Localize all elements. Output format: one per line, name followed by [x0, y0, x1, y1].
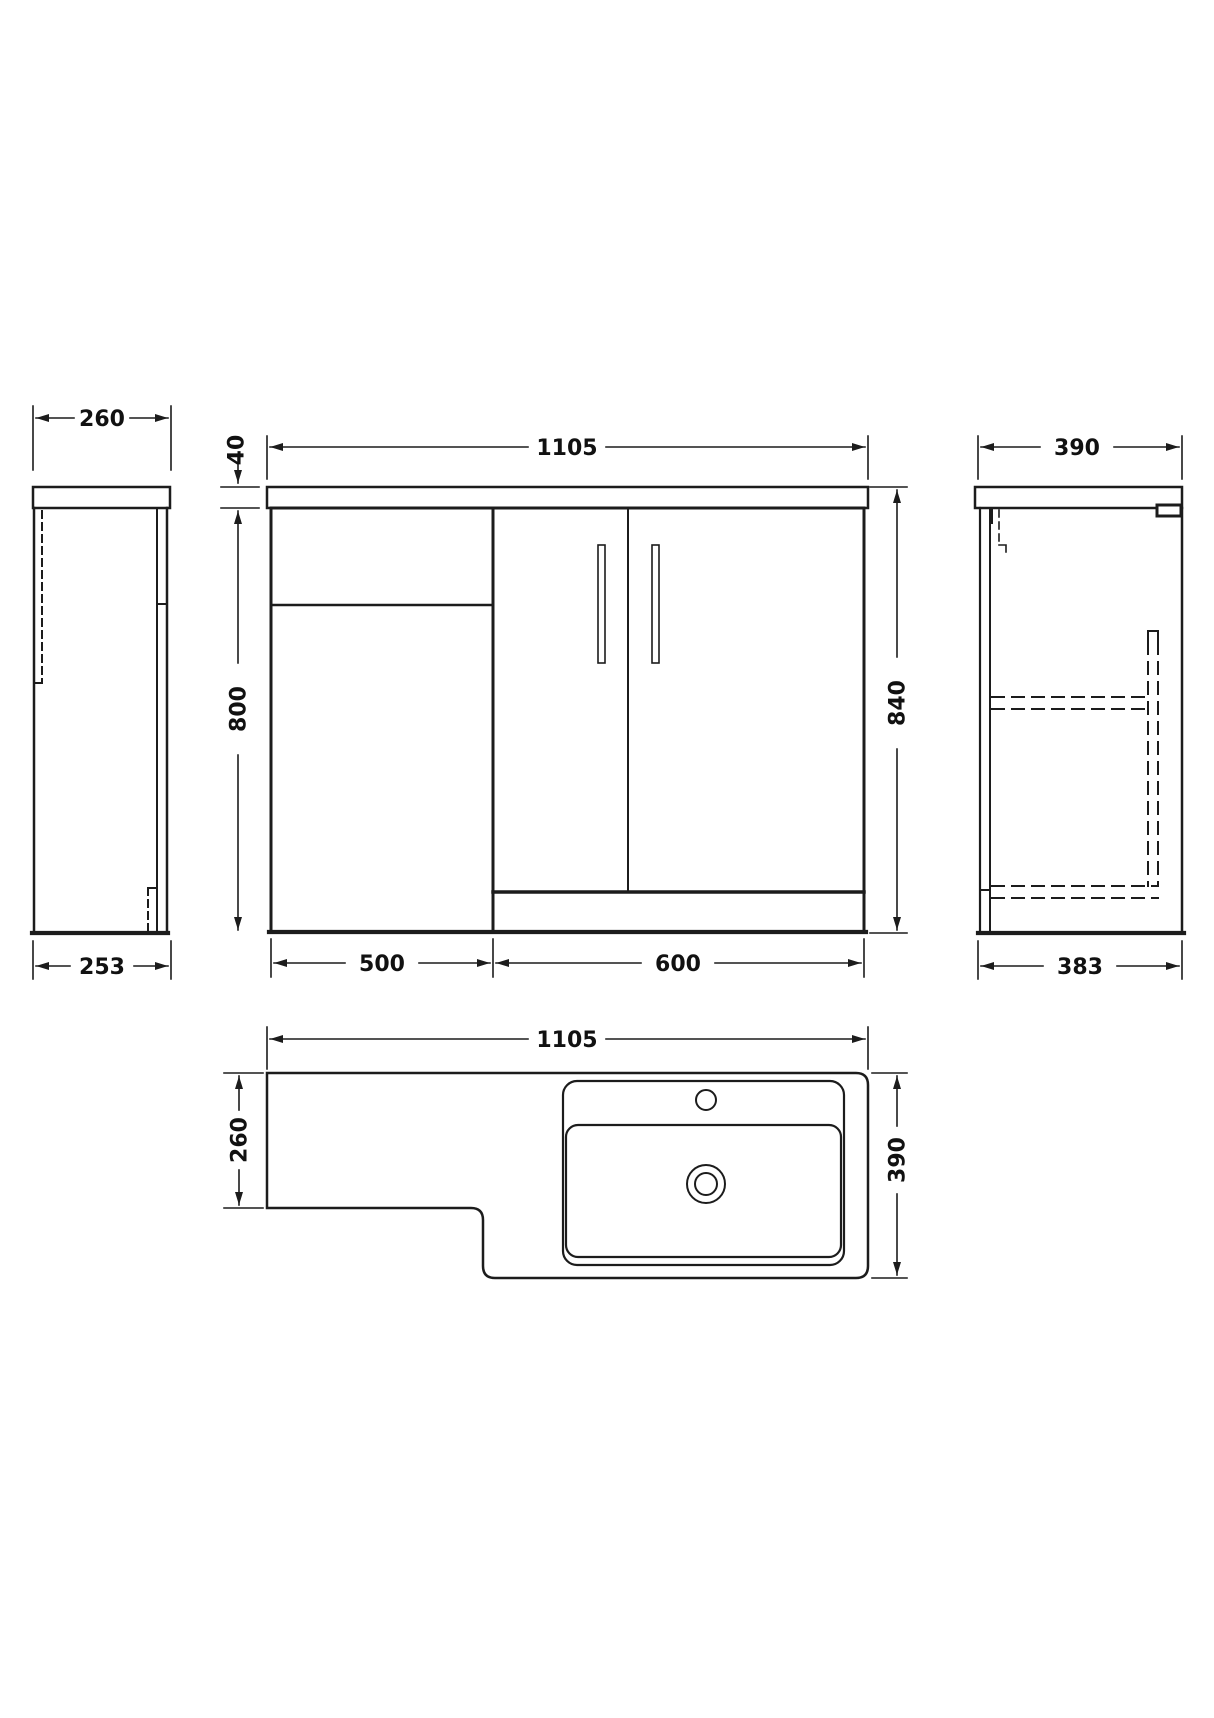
left-side-view: 260 253	[32, 406, 171, 980]
door-handle-left	[598, 545, 605, 663]
hidden-hinge-lines	[999, 510, 1006, 556]
dim-right-top-depth: 390	[978, 436, 1182, 479]
dim-label-390: 390	[1054, 436, 1100, 461]
hidden-pipe-chase	[1148, 642, 1158, 886]
dim-label-800: 800	[227, 686, 252, 732]
pipe-chase-top-cap	[1148, 631, 1158, 642]
basin-bowl	[566, 1125, 841, 1257]
dim-label-40: 40	[225, 435, 250, 466]
dim-label-260: 260	[79, 407, 125, 432]
vanity-unit-technical-drawing: 260 253 1105	[0, 0, 1214, 1718]
dim-label-1105: 1105	[536, 436, 597, 461]
worktop-front	[267, 487, 868, 508]
dim-front-overall-width: 1105	[267, 436, 868, 479]
dim-label-600: 600	[655, 952, 701, 977]
extension-ticks	[221, 487, 259, 508]
hidden-interior-lines	[992, 631, 1158, 898]
drawing-canvas: 260 253 1105	[0, 0, 1214, 1718]
hidden-mid-shelf	[992, 697, 1148, 709]
tap-hole	[696, 1090, 716, 1110]
dim-overall-height: 840	[870, 487, 911, 933]
door-handle-right	[652, 545, 659, 663]
front-view: 1105 40 800 840	[221, 435, 911, 977]
dim-label-840: 840	[886, 680, 911, 726]
hidden-bottom-shelf	[992, 886, 1158, 898]
waste-drain-outer	[687, 1165, 725, 1203]
right-side-view: 390 383	[975, 436, 1184, 980]
dim-label-390-plan: 390	[886, 1137, 911, 1183]
dim-cabinet-height: 800	[227, 511, 252, 930]
dim-label-1105-plan: 1105	[536, 1028, 597, 1053]
cabinet-side-edges	[271, 508, 864, 931]
dim-label-253: 253	[79, 955, 125, 980]
dim-left-top-width: 260	[33, 406, 171, 470]
dim-section-widths: 500 600	[271, 939, 864, 977]
hinge-detail	[992, 510, 1006, 556]
dim-plan-overall-width: 1105	[267, 1027, 868, 1069]
waste-drain-inner	[695, 1173, 717, 1195]
dim-label-500: 500	[359, 952, 405, 977]
dim-label-383: 383	[1057, 955, 1103, 980]
plan-view: 1105 260 390	[224, 1027, 911, 1278]
wall-bracket	[1157, 505, 1181, 516]
worktop-end-profile	[33, 487, 170, 508]
worktop-end-profile	[975, 487, 1182, 508]
dim-left-bottom-width: 253	[33, 941, 171, 980]
dim-plan-right-depth: 390	[872, 1073, 911, 1278]
dim-right-bottom-depth: 383	[978, 941, 1182, 980]
dim-label-260-plan: 260	[228, 1117, 253, 1163]
dim-plan-left-depth: 260	[224, 1073, 263, 1208]
dim-worktop-thickness: 40	[221, 435, 259, 508]
worktop-plan-outline	[267, 1073, 868, 1278]
